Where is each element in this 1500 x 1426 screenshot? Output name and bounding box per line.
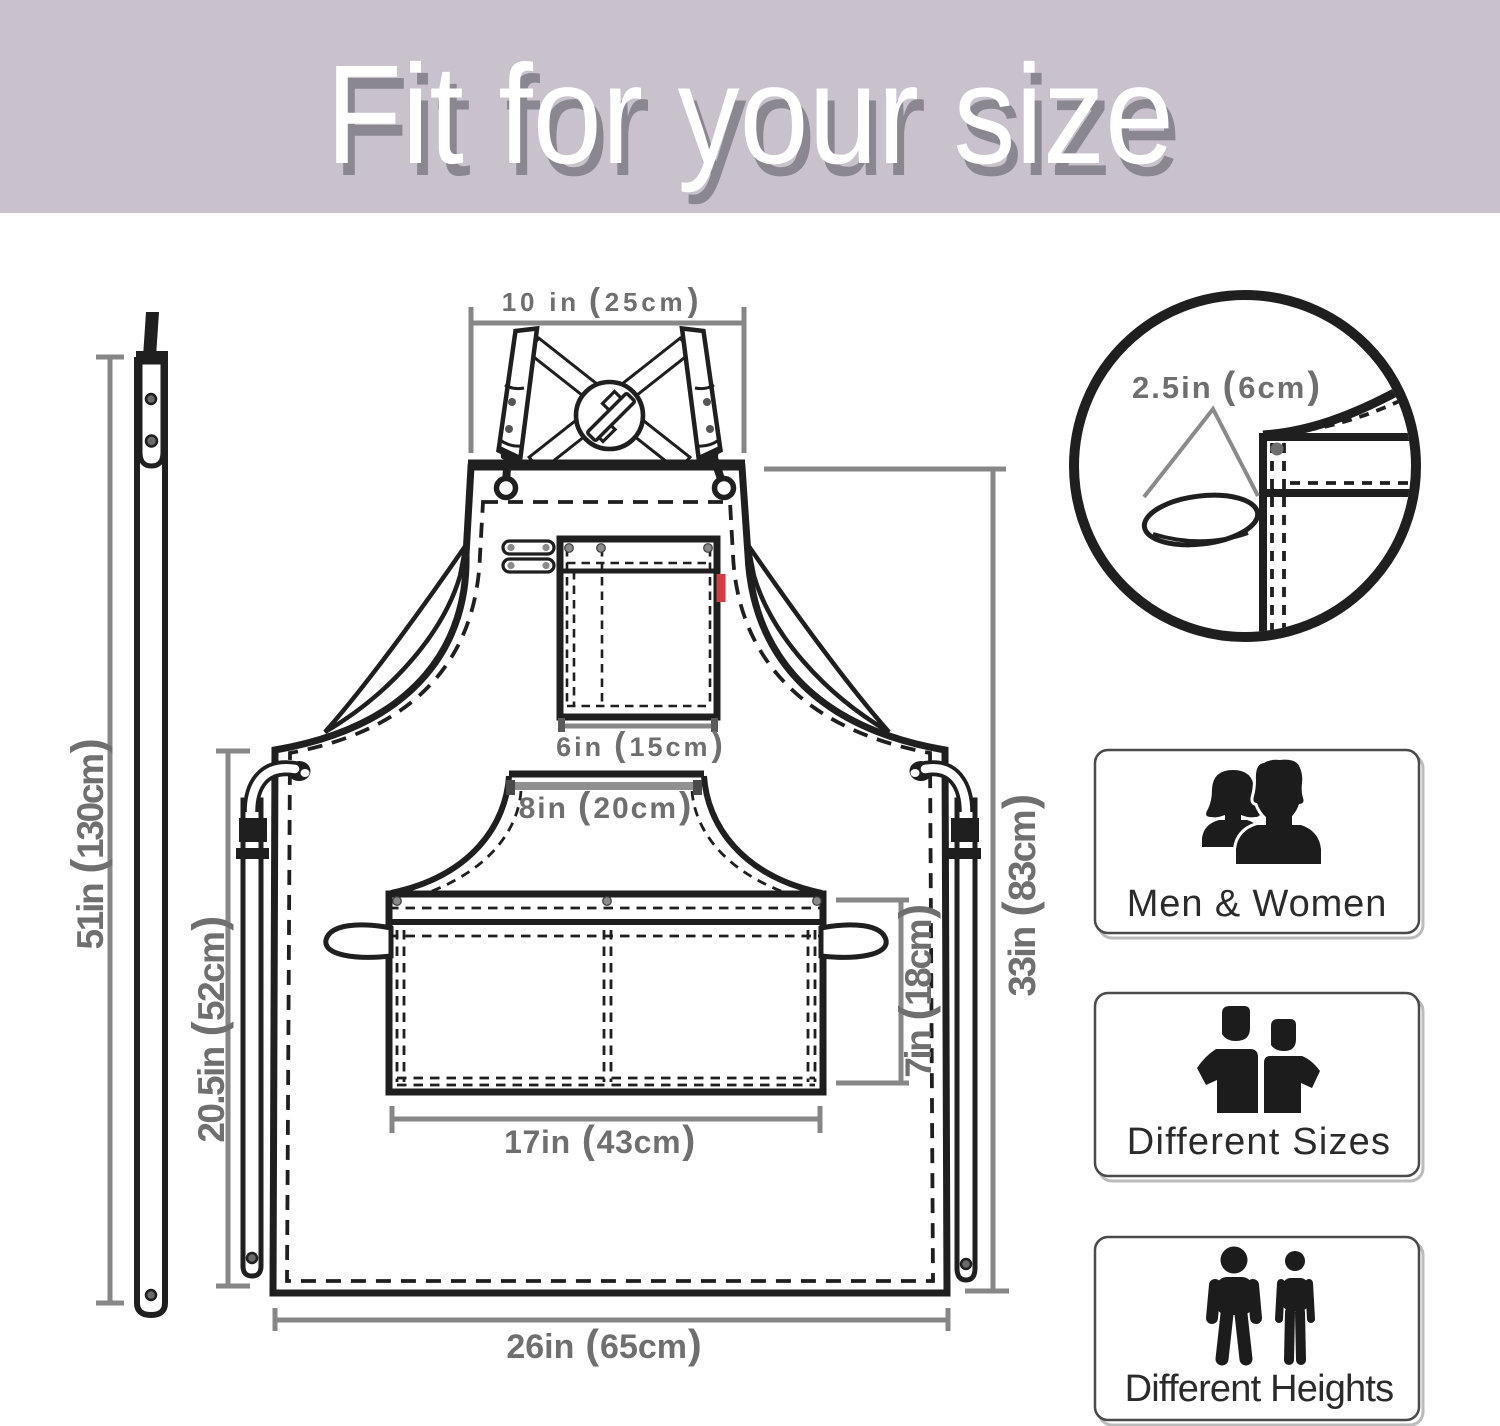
svg-text:26in(65cm): 26in(65cm) (506, 1321, 701, 1367)
svg-text:51in(130cm): 51in(130cm) (62, 740, 113, 949)
svg-text:10 in(25cm): 10 in(25cm) (502, 281, 703, 318)
svg-text:8in(20cm): 8in(20cm) (519, 785, 694, 826)
svg-text:2.5in(6cm): 2.5in(6cm) (1132, 365, 1322, 407)
svg-text:17in(43cm): 17in(43cm) (504, 1119, 696, 1162)
svg-text:Different Heights: Different Heights (1125, 1368, 1394, 1410)
svg-text:Different Sizes: Different Sizes (1127, 1121, 1391, 1163)
svg-text:Fit for your size: Fit for your size (326, 35, 1174, 193)
svg-text:6in(15cm): 6in(15cm) (556, 726, 726, 764)
svg-text:7in(18cm): 7in(18cm) (890, 906, 941, 1078)
svg-text:Men & Women: Men & Women (1127, 883, 1388, 925)
svg-text:20.5in(52cm): 20.5in(52cm) (183, 917, 234, 1142)
